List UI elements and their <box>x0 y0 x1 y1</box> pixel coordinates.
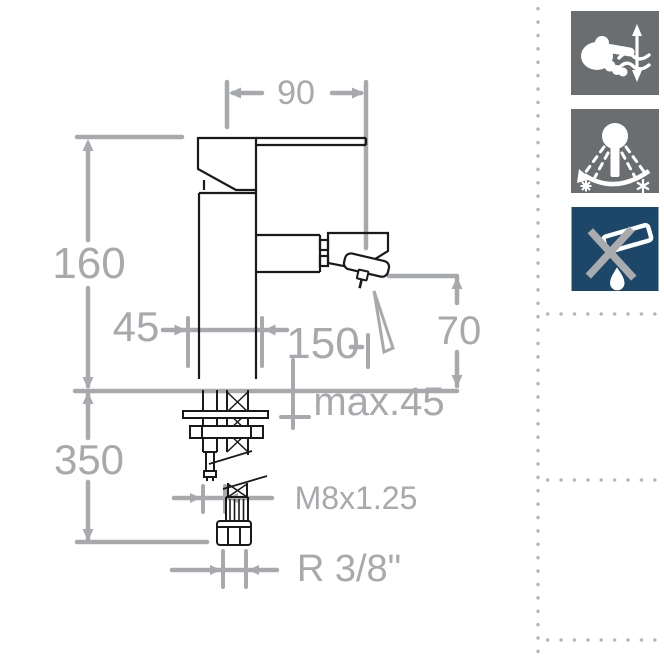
dotted-divider-horizontal-3 <box>541 637 664 643</box>
dim-label-base-width: 45 <box>113 306 160 348</box>
dotted-divider-horizontal-2 <box>541 477 664 483</box>
dim-label-total-height: 160 <box>52 242 125 286</box>
dim-label-hose-length: 350 <box>54 439 124 481</box>
dim-label-hose-connection: R 3/8" <box>297 550 401 588</box>
stream-angle-mark <box>374 291 393 352</box>
catalog-technical-drawing-page: 90 160 45 150 70 max.45 350 M8x1.25 R 3/… <box>0 0 664 664</box>
aerator <box>339 252 390 293</box>
no-waste-icon <box>571 207 659 291</box>
dim-label-outlet-height: 70 <box>437 311 482 351</box>
spray-arc-hot-cold-icon <box>571 109 659 193</box>
dotted-divider-vertical <box>535 2 541 662</box>
under-deck-assembly <box>183 390 268 545</box>
temperature-adjust-icon <box>571 109 659 193</box>
hand-lever-flow-icon <box>571 11 659 95</box>
hose-crosshatch <box>227 392 248 452</box>
dotted-divider-horizontal-1 <box>541 311 664 317</box>
dim-label-stud-thread: M8x1.25 <box>295 482 418 514</box>
crossed-waste-plug-icon <box>571 207 659 291</box>
dim-label-spout-center: 150 <box>286 322 359 366</box>
dim-label-spout-reach: 90 <box>277 76 315 110</box>
flow-control-icon <box>571 11 659 95</box>
dim-label-max-deck-thickness: max.45 <box>313 382 444 422</box>
